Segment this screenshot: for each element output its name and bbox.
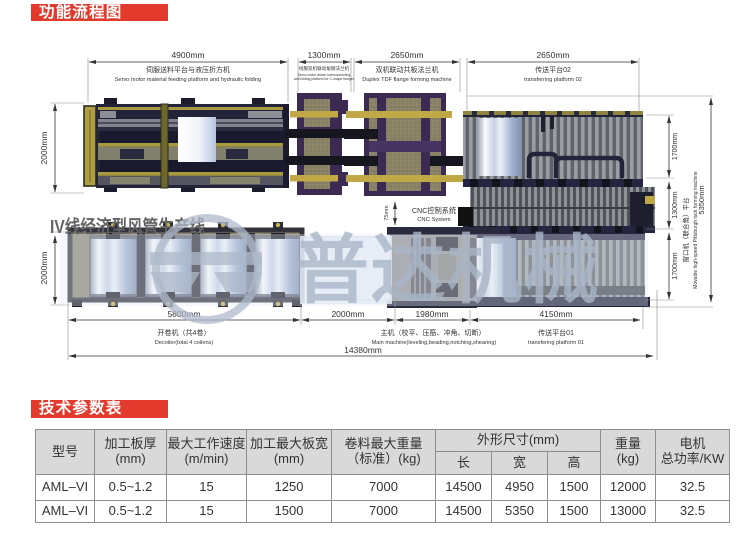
svg-text:75mm: 75mm	[384, 205, 390, 221]
svg-text:Duplex TDF flange forming mach: Duplex TDF flange forming machine	[362, 77, 451, 83]
svg-text:14380mm: 14380mm	[344, 345, 382, 355]
svg-text:1300mm: 1300mm	[307, 50, 340, 60]
svg-text:2000mm: 2000mm	[39, 131, 49, 164]
svg-text:传送平台02: 传送平台02	[535, 65, 571, 74]
svg-text:Main machine(leveling,beading,: Main machine(leveling,beading,notching,s…	[372, 340, 497, 346]
svg-text:1700mm: 1700mm	[672, 133, 679, 160]
svg-text:开卷机（共4卷）: 开卷机（共4卷）	[158, 328, 211, 337]
svg-text:普达机械: 普达机械	[294, 228, 600, 312]
svg-text:transfering platform 01: transfering platform 01	[528, 340, 584, 346]
svg-text:CNC System: CNC System	[417, 217, 451, 223]
svg-text:and folding platform for C-sha: and folding platform for C-shape flanges	[294, 77, 355, 81]
svg-text:2650mm: 2650mm	[536, 50, 569, 60]
svg-text:transferring platform 02: transferring platform 02	[524, 77, 582, 83]
svg-text:1700mm: 1700mm	[672, 252, 679, 279]
svg-text:传送平台01: 传送平台01	[538, 328, 574, 337]
svg-text:CNC控制系统: CNC控制系统	[412, 206, 456, 215]
svg-text:伺服双机联动角钢法兰机: 伺服双机联动角钢法兰机	[299, 65, 350, 72]
svg-text:4900mm: 4900mm	[171, 50, 204, 60]
svg-text:Servo motor material feeding p: Servo motor material feeding platform an…	[115, 77, 261, 83]
svg-text:Decoiler(total 4 coilens): Decoiler(total 4 coilens)	[155, 340, 214, 346]
svg-text:伺服送料平台与液压折方机: 伺服送料平台与液压折方机	[146, 65, 230, 74]
svg-text:主机（校平、压筋、冲角、切断）: 主机（校平、压筋、冲角、切断）	[381, 328, 486, 337]
svg-text:5350mm: 5350mm	[697, 185, 706, 214]
svg-text:1300mm: 1300mm	[672, 191, 679, 218]
svg-text:2650mm: 2650mm	[390, 50, 423, 60]
svg-text:窗口机（联合角）平台: 窗口机（联合角）平台	[681, 198, 690, 263]
svg-text:双机联动共板法兰机: 双机联动共板法兰机	[376, 65, 439, 74]
svg-text:2000mm: 2000mm	[39, 251, 49, 284]
